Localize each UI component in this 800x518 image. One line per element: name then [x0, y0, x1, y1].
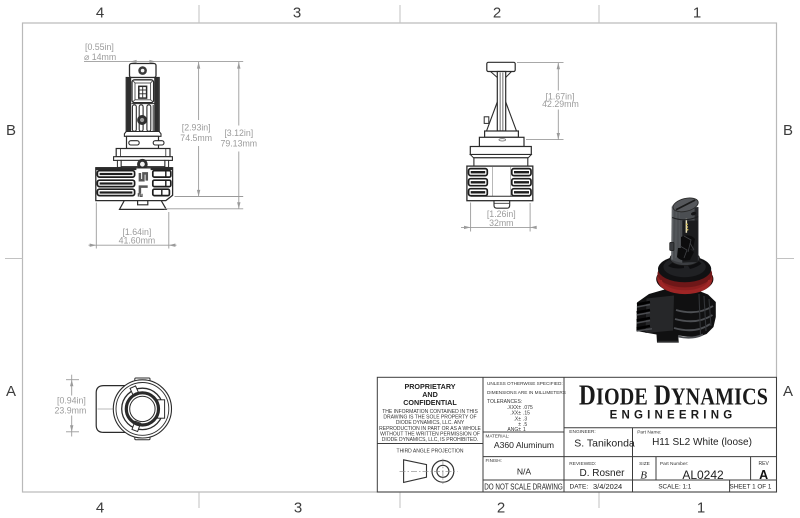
- svg-text:32mm: 32mm: [489, 218, 513, 228]
- svg-text:⌀ 14mm: ⌀ 14mm: [84, 52, 116, 62]
- svg-text:Part Name:: Part Name:: [637, 430, 661, 436]
- svg-text:DO NOT SCALE DRAWING: DO NOT SCALE DRAWING: [484, 481, 563, 491]
- svg-text:[0.55in]: [0.55in]: [85, 42, 114, 52]
- svg-text:B: B: [783, 122, 793, 139]
- svg-text:UNLESS OTHERWISE SPECIFIED:: UNLESS OTHERWISE SPECIFIED:: [487, 381, 563, 386]
- svg-text:DIODE DYNAMICS, LLC, IS PROHIB: DIODE DYNAMICS, LLC, IS PROHIBITED.: [382, 437, 478, 443]
- svg-text:79.13mm: 79.13mm: [220, 139, 257, 149]
- svg-text:ENGINEER:: ENGINEER:: [569, 429, 595, 435]
- svg-text:DATE:: DATE:: [570, 484, 589, 491]
- svg-text:3/4/2024: 3/4/2024: [593, 482, 622, 491]
- svg-text:ENGINEERING: ENGINEERING: [610, 410, 737, 422]
- svg-text:1: 1: [523, 427, 526, 433]
- svg-text:MATERIAL:: MATERIAL:: [486, 434, 510, 439]
- svg-text:[2.93in]: [2.93in]: [182, 123, 211, 133]
- svg-text:REV: REV: [759, 461, 770, 467]
- svg-text:2: 2: [493, 5, 501, 22]
- svg-text:S. Tanikonda: S. Tanikonda: [574, 438, 635, 450]
- svg-text:SCALE: 1:1: SCALE: 1:1: [658, 484, 691, 491]
- svg-text:ANG±: ANG±: [507, 427, 521, 433]
- svg-text:SHEET 1 OF 1: SHEET 1 OF 1: [729, 484, 771, 491]
- svg-text:A360 Aluminum: A360 Aluminum: [494, 440, 554, 450]
- svg-text:THIRD ANGLE PROJECTION: THIRD ANGLE PROJECTION: [397, 449, 464, 455]
- svg-text:1: 1: [697, 500, 705, 517]
- svg-text:3: 3: [293, 5, 301, 22]
- svg-text:74.5mm: 74.5mm: [180, 133, 212, 143]
- svg-text:[0.94in]: [0.94in]: [57, 395, 86, 405]
- svg-text:A: A: [759, 468, 768, 482]
- svg-text:4: 4: [96, 5, 104, 22]
- svg-text:41.60mm: 41.60mm: [119, 236, 156, 246]
- svg-text:REVIEWED:: REVIEWED:: [569, 461, 596, 467]
- svg-text:3: 3: [294, 500, 302, 517]
- svg-text:CONFIDENTIAL: CONFIDENTIAL: [403, 398, 457, 407]
- svg-text:DIODE DYNAMICS: DIODE DYNAMICS: [579, 379, 768, 411]
- svg-text:FINISH:: FINISH:: [486, 458, 502, 463]
- svg-text:A: A: [6, 383, 16, 400]
- svg-text:42.29mm: 42.29mm: [542, 99, 579, 109]
- svg-text:2: 2: [497, 500, 505, 517]
- svg-text:DIMENSIONS ARE IN MILLIMETERS: DIMENSIONS ARE IN MILLIMETERS: [487, 390, 566, 395]
- svg-text:[3.12in]: [3.12in]: [224, 128, 253, 138]
- svg-text:1: 1: [693, 5, 701, 22]
- svg-text:B: B: [6, 122, 16, 139]
- svg-text:AL0242: AL0242: [682, 468, 724, 482]
- svg-text:D. Rosner: D. Rosner: [579, 468, 625, 479]
- svg-text:H11 SL2 White (loose): H11 SL2 White (loose): [652, 437, 752, 448]
- svg-text:23.9mm: 23.9mm: [55, 406, 87, 416]
- svg-text:A: A: [783, 383, 793, 400]
- svg-text:4: 4: [96, 500, 104, 517]
- svg-text:N/A: N/A: [517, 467, 532, 477]
- svg-text:Part Number:: Part Number:: [660, 461, 689, 467]
- svg-text:SIZE: SIZE: [639, 461, 650, 467]
- svg-text:B: B: [640, 470, 647, 482]
